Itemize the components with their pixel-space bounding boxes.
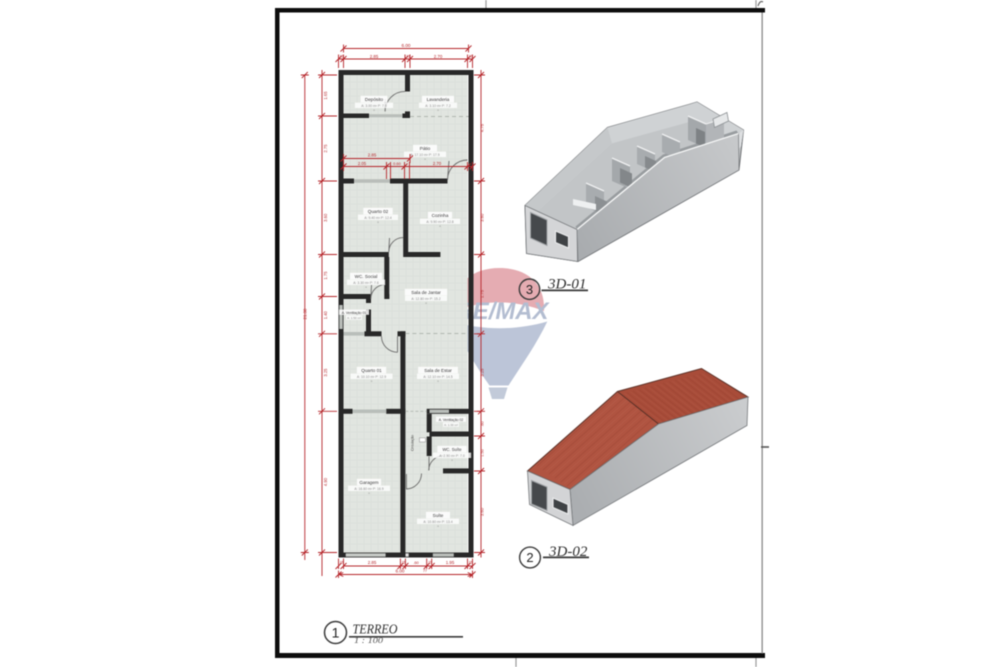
svg-text:.60: .60: [481, 421, 485, 426]
svg-text:Quarto 01: Quarto 01: [361, 368, 382, 373]
svg-text:1.95: 1.95: [446, 560, 455, 565]
svg-text:3.25: 3.25: [480, 368, 485, 377]
svg-text:3.60: 3.60: [480, 507, 485, 516]
svg-text:1.50: 1.50: [481, 449, 485, 456]
svg-text:4.75: 4.75: [480, 123, 485, 132]
svg-text:3: 3: [526, 282, 533, 297]
svg-text:3D-01: 3D-01: [547, 277, 586, 293]
svg-text:6.00: 6.00: [396, 569, 405, 574]
svg-text:2.70: 2.70: [434, 54, 443, 59]
svg-text:Lavanderia: Lavanderia: [427, 97, 450, 102]
svg-text:A. Ventilação 02: A. Ventilação 02: [439, 418, 464, 422]
svg-text:.60: .60: [413, 560, 419, 565]
svg-text:3D-02: 3D-02: [548, 544, 588, 560]
svg-text:.15: .15: [427, 561, 432, 565]
svg-text:2: 2: [526, 550, 533, 565]
svg-text:2.05: 2.05: [358, 161, 367, 166]
svg-text:.15: .15: [339, 55, 344, 59]
svg-text:21.30: 21.30: [303, 308, 308, 320]
svg-text:6.00: 6.00: [402, 43, 411, 48]
svg-text:.15: .15: [468, 561, 473, 565]
svg-text:.15: .15: [401, 561, 406, 565]
svg-text:2.70: 2.70: [433, 161, 442, 166]
svg-text:Quarto 02: Quarto 02: [368, 209, 389, 214]
svg-text:Suíte: Suíte: [433, 513, 444, 518]
svg-text:2.85: 2.85: [368, 560, 377, 565]
svg-text:0.60: 0.60: [393, 161, 402, 166]
svg-text:3.60: 3.60: [480, 213, 485, 222]
svg-text:Cozinha: Cozinha: [432, 213, 449, 218]
svg-text:1.40: 1.40: [323, 310, 328, 319]
svg-text:Pátio: Pátio: [420, 146, 431, 151]
svg-text:2.85: 2.85: [370, 54, 379, 59]
svg-text:2.85: 2.85: [368, 153, 377, 158]
svg-text:A: 1.50 m²: A: 1.50 m²: [347, 316, 361, 320]
svg-text:WC. Social: WC. Social: [355, 274, 378, 279]
svg-text:4.90: 4.90: [323, 477, 328, 486]
svg-text:3.60: 3.60: [323, 213, 328, 222]
svg-text:1.75: 1.75: [323, 271, 328, 280]
svg-text:Sala de Estar: Sala de Estar: [424, 368, 452, 373]
svg-text:Sala de Jantar: Sala de Jantar: [411, 290, 441, 295]
svg-text:Circulação: Circulação: [411, 435, 415, 451]
svg-text:1.65: 1.65: [323, 91, 328, 100]
svg-text:2.75: 2.75: [323, 144, 328, 153]
svg-text:.15: .15: [468, 55, 473, 59]
svg-text:A. Ventilação 01: A. Ventilação 01: [342, 311, 367, 315]
svg-text:77: 77: [423, 569, 427, 573]
svg-text:3.25: 3.25: [323, 368, 328, 377]
svg-text:A: 1.30 m²: A: 1.30 m²: [444, 423, 458, 427]
svg-text:.15: .15: [405, 55, 410, 59]
svg-text:Garagem: Garagem: [359, 480, 378, 485]
svg-text:1.75: 1.75: [480, 289, 485, 298]
svg-text:1: 1: [332, 625, 340, 641]
svg-text:1 : 100: 1 : 100: [354, 636, 383, 645]
svg-text:Depósito: Depósito: [365, 97, 384, 102]
svg-text:.15: .15: [339, 561, 344, 565]
svg-text:WC. Suíte: WC. Suíte: [442, 447, 462, 452]
